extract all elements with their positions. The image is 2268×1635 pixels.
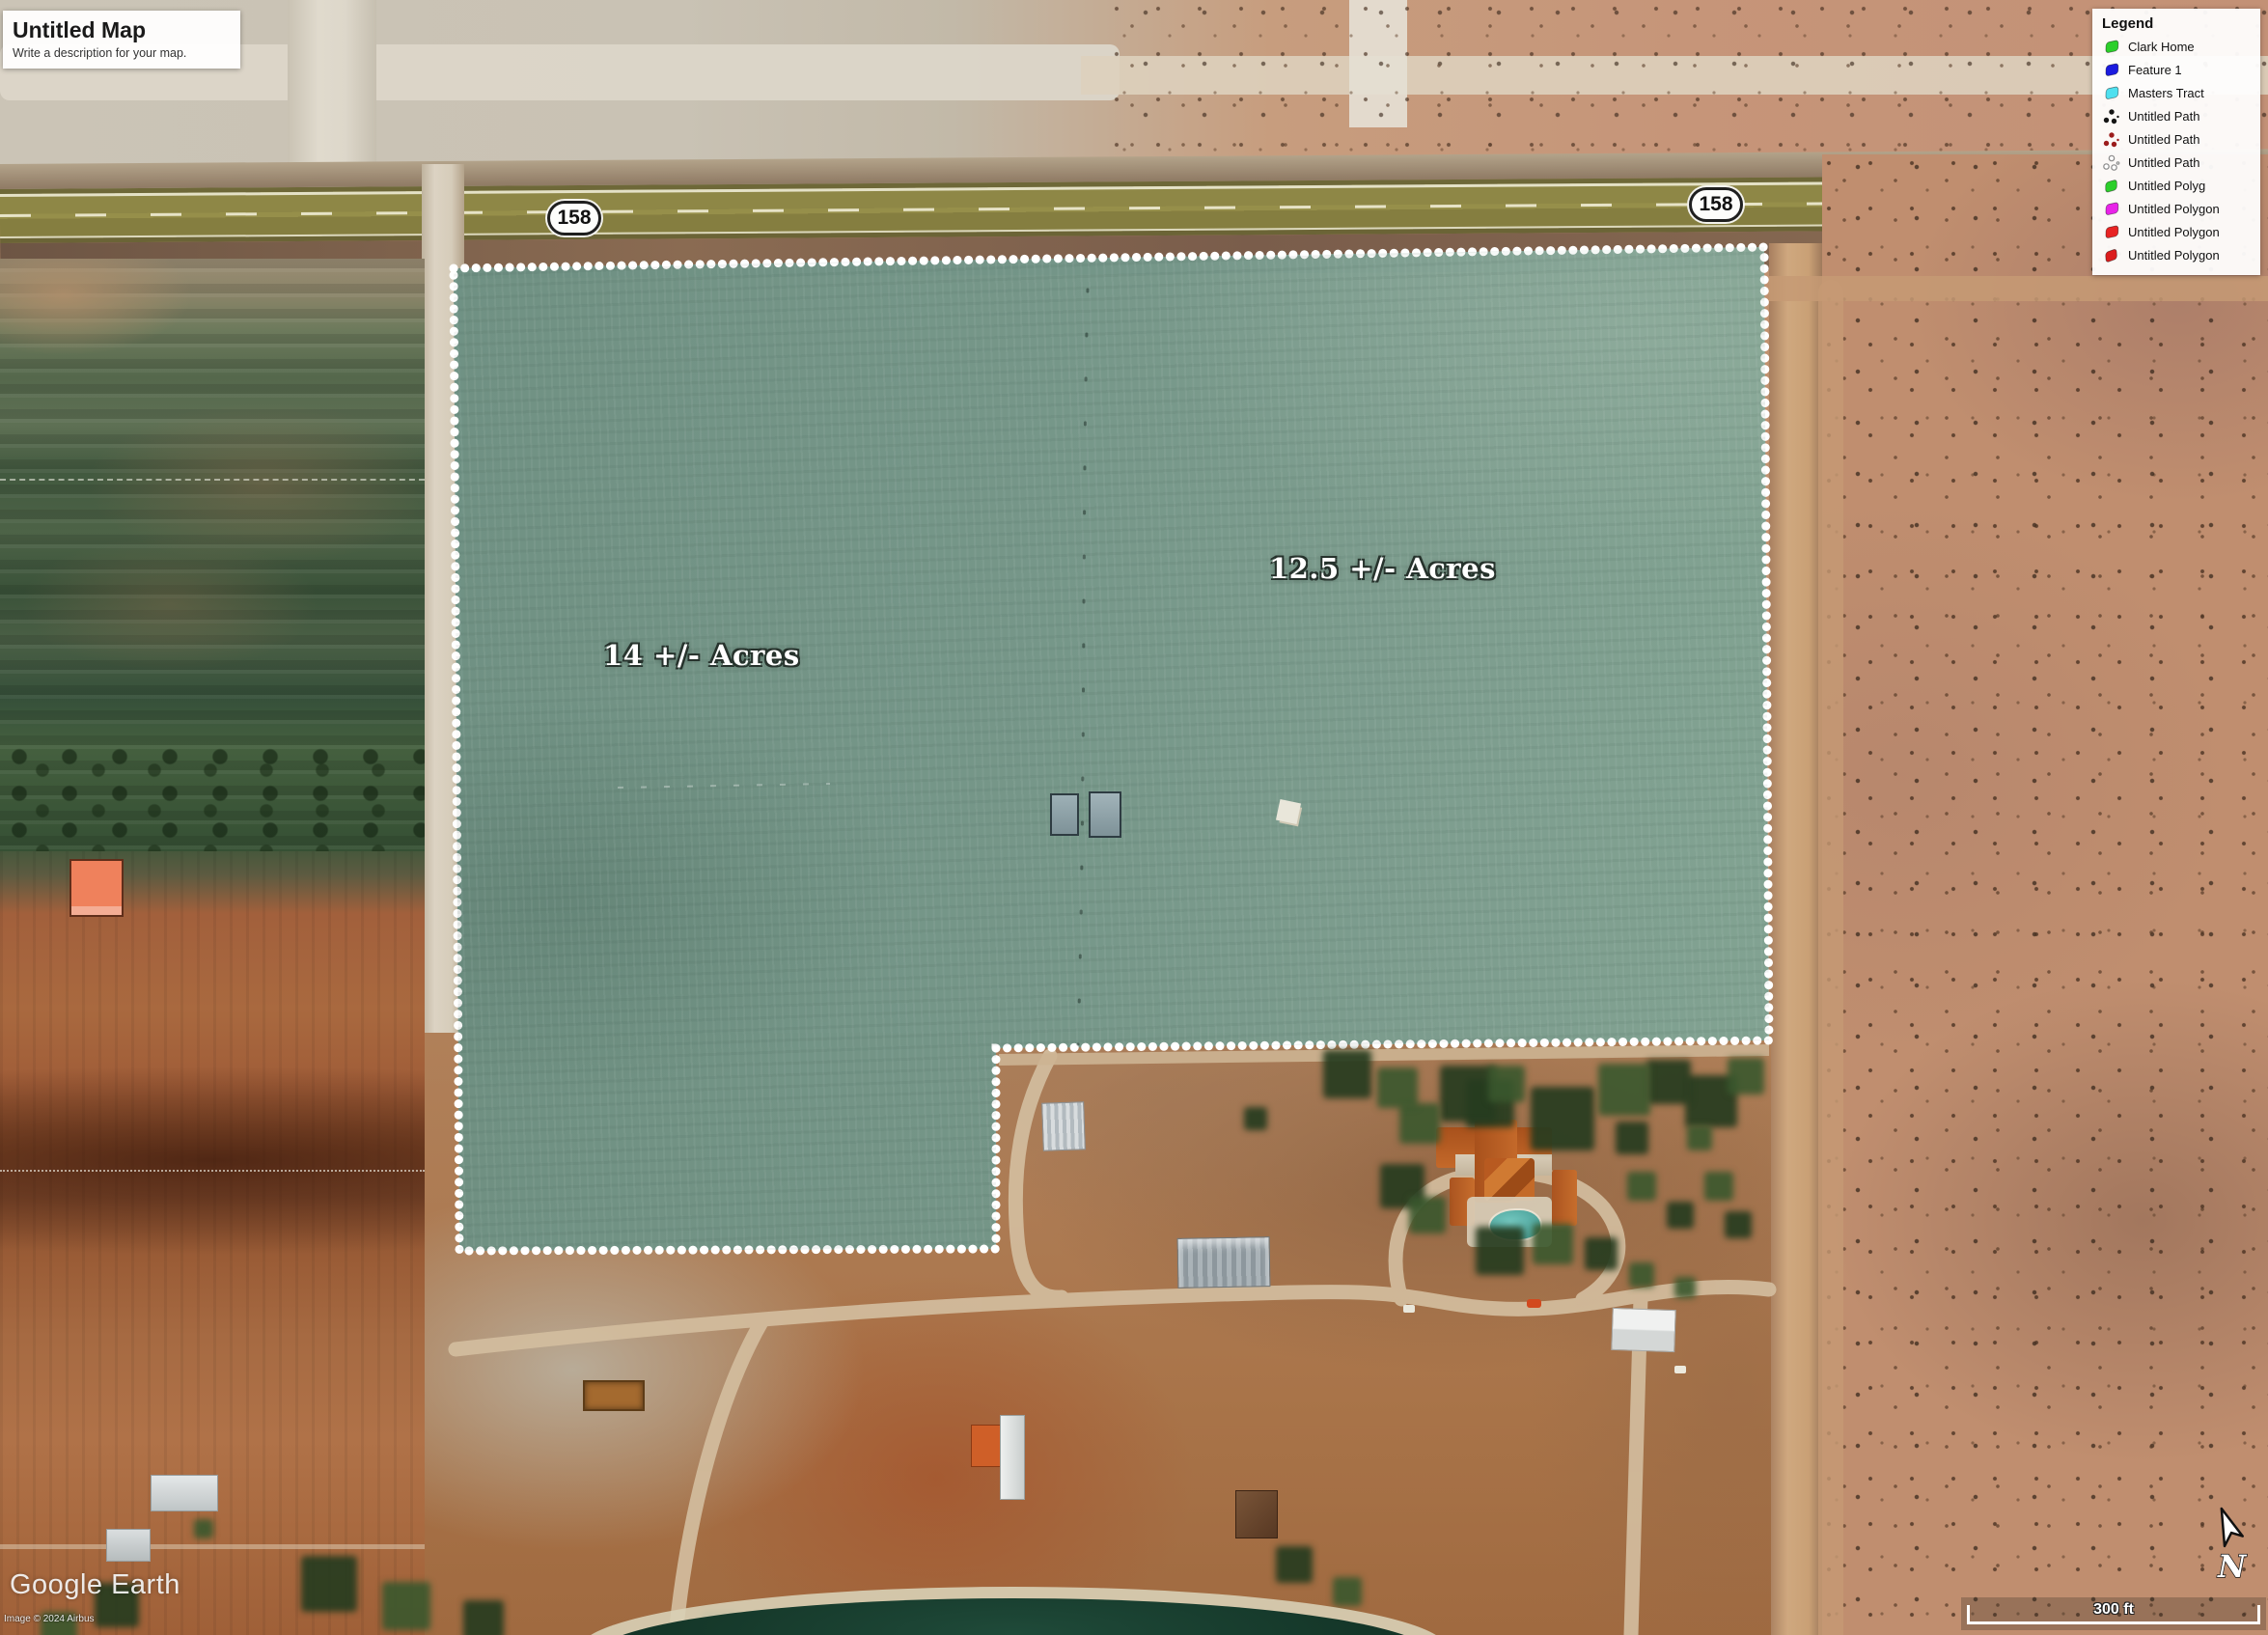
legend-panel: Legend Clark Home Feature 1 Masters Trac… — [2092, 9, 2260, 275]
vehicle — [1674, 1366, 1686, 1373]
map-vector-overlay — [0, 0, 2268, 1635]
trees — [0, 0, 2, 2]
legend-item-untitled-polygon-1: Untitled Polygon — [2102, 197, 2253, 220]
swimming-pool — [1488, 1208, 1542, 1241]
route-shield-label: 158 — [557, 207, 591, 230]
metal-barn — [1177, 1236, 1271, 1289]
north-indicator: N — [2202, 1504, 2253, 1587]
legend-item-label: Untitled Polyg — [2128, 179, 2205, 193]
legend-item-clark-home: Clark Home — [2102, 35, 2253, 58]
map-title-box: Untitled Map Write a description for you… — [3, 11, 240, 69]
polygon-swatch-icon — [2102, 83, 2121, 102]
legend-item-untitled-polygon-2: Untitled Polygon — [2102, 220, 2253, 243]
polygon-swatch-icon — [2102, 37, 2121, 56]
house-roof-pyramid — [1484, 1158, 1535, 1201]
white-shed — [106, 1529, 151, 1562]
path-dots-outline-icon — [2102, 152, 2121, 172]
house-roof — [1552, 1170, 1577, 1226]
brown-shed — [1235, 1490, 1278, 1538]
imagery-attribution: Image © 2024 Airbus — [4, 1614, 95, 1624]
route-shield-label: 158 — [1699, 193, 1732, 216]
map-title: Untitled Map — [13, 18, 231, 42]
white-shed — [1611, 1308, 1675, 1352]
legend-item-untitled-polyg: Untitled Polyg — [2102, 174, 2253, 197]
polygon-swatch-icon — [2102, 222, 2121, 241]
legend-item-label: Untitled Path — [2128, 155, 2199, 170]
path-dots-icon — [2102, 106, 2121, 125]
path-dots-icon — [2102, 129, 2121, 149]
vehicle — [1527, 1299, 1541, 1308]
legend-item-untitled-path-3: Untitled Path — [2102, 151, 2253, 174]
scale-label: 300 ft — [1961, 1601, 2266, 1619]
route-shield-158: 158 — [547, 201, 601, 236]
legend-item-label: Untitled Polygon — [2128, 225, 2220, 239]
masters-tract-polygon[interactable] — [454, 247, 1769, 1251]
border-road — [999, 1050, 1769, 1060]
scale-bar: 300 ft — [1961, 1597, 2266, 1630]
legend-item-masters-tract: Masters Tract — [2102, 81, 2253, 104]
map-canvas[interactable]: 158 158 14 +/- Acres 12.5 +/- Acres Unti… — [0, 0, 2268, 1635]
legend-item-label: Clark Home — [2128, 40, 2195, 54]
area-label-12-5-acres: 12.5 +/- Acres — [1269, 552, 1496, 585]
legend-item-label: Untitled Path — [2128, 109, 2199, 124]
orange-shed — [971, 1425, 1002, 1467]
polygon-swatch-icon — [2102, 176, 2121, 195]
polygon-swatch-icon — [2102, 199, 2121, 218]
legend-item-label: Untitled Polygon — [2128, 248, 2220, 263]
google-earth-logo: Google Earth — [10, 1569, 180, 1601]
legend-item-label: Untitled Polygon — [2128, 202, 2220, 216]
map-description[interactable]: Write a description for your map. — [13, 46, 231, 60]
north-arrow-icon: N — [2202, 1504, 2253, 1587]
field-structure — [1050, 793, 1079, 836]
legend-item-untitled-path-1: Untitled Path — [2102, 104, 2253, 127]
legend-title: Legend — [2102, 15, 2253, 32]
polygon-swatch-icon — [2102, 245, 2121, 264]
legend-item-feature-1: Feature 1 — [2102, 58, 2253, 81]
white-barn — [1041, 1101, 1086, 1151]
route-shield-158: 158 — [1689, 187, 1743, 222]
trailer — [583, 1380, 645, 1411]
field-structure — [1089, 791, 1121, 838]
area-label-14-acres: 14 +/- Acres — [603, 639, 800, 672]
legend-item-label: Masters Tract — [2128, 86, 2204, 100]
legend-item-untitled-path-2: Untitled Path — [2102, 127, 2253, 151]
vehicle — [1403, 1305, 1415, 1313]
white-barn — [1000, 1415, 1025, 1500]
legend-item-label: Feature 1 — [2128, 63, 2182, 77]
orange-roof-shed — [69, 859, 124, 917]
field-structure — [1276, 799, 1301, 824]
legend-item-label: Untitled Path — [2128, 132, 2199, 147]
white-shed — [151, 1475, 218, 1511]
north-label: N — [2217, 1548, 2248, 1585]
polygon-swatch-icon — [2102, 60, 2121, 79]
legend-item-untitled-polygon-3: Untitled Polygon — [2102, 243, 2253, 266]
